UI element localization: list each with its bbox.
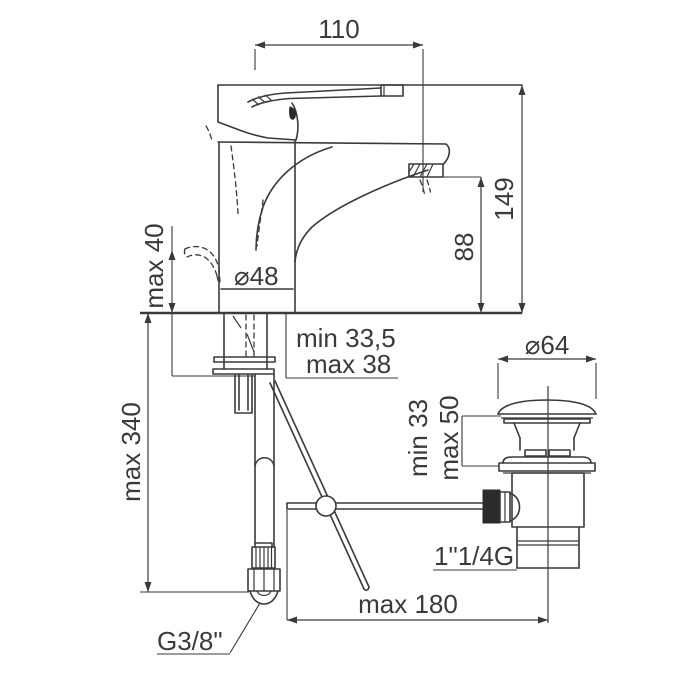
mounting-shank (213, 313, 275, 413)
popup-rod (270, 383, 364, 589)
water-stream (420, 180, 431, 194)
lever-blade (248, 88, 381, 102)
dim-waste-max-label: max 50 (434, 395, 464, 480)
faucet-dimension-drawing: 110 149 88 max 40 max 340 min 33,5 max 3… (0, 0, 700, 700)
dim-overall-height: 149 (489, 85, 526, 313)
threaded-stud (235, 375, 252, 413)
faucet-handle (206, 85, 522, 141)
dim-deck-max-label: max 38 (306, 349, 391, 379)
dim-outlet-height: 88 (420, 177, 485, 313)
technical-drawing-page: 110 149 88 max 40 max 340 min 33,5 max 3… (0, 0, 700, 700)
dim-rod-reach-label: max 180 (358, 589, 458, 619)
waste-flange (499, 457, 595, 473)
waste-side-inlet (483, 490, 520, 523)
faucet-body (184, 141, 449, 313)
dim-lever-height-label: max 40 (139, 223, 169, 308)
dim-spout-reach-label: 110 (318, 14, 359, 44)
spout-rear-curve (256, 147, 332, 250)
spout-inner-curve (295, 170, 428, 262)
popup-waste (483, 386, 596, 623)
dim-waste-cap-label: ⌀64 (525, 330, 570, 360)
dim-body-diameter: ⌀48 (234, 261, 279, 291)
waste-cap (498, 400, 596, 418)
dim-waste-height-range: min 33 max 50 (403, 395, 501, 480)
dim-body-diameter-label: ⌀48 (234, 261, 279, 291)
lever-open-position (184, 247, 220, 284)
dim-spout-reach: 110 (255, 14, 423, 192)
mounting-nut (213, 369, 274, 374)
dim-deck-thickness: min 33,5 max 38 (286, 313, 398, 379)
dim-inlet-thread-label: G3/8" (157, 626, 223, 656)
dim-overall-height-label: 149 (489, 177, 519, 220)
dim-hose-length-label: max 340 (116, 402, 146, 502)
dim-waste-thread-label: 1"1/4G (434, 541, 514, 571)
lever-swing-arc (206, 126, 212, 141)
dim-outlet-height-label: 88 (449, 233, 479, 262)
dim-hose-length: max 340 (116, 313, 249, 592)
dim-waste-cap-diameter: ⌀64 (498, 330, 596, 399)
dim-waste-thread: 1"1/4G (433, 541, 517, 571)
hose-fitting (248, 543, 280, 604)
horseshoe-washer (214, 357, 275, 362)
aerator (409, 164, 443, 194)
dim-waste-min-label: min 33 (403, 399, 433, 477)
dim-inlet-thread: G3/8" (157, 603, 260, 656)
rod-ball-joint (316, 496, 336, 516)
inlet-thread-leader (230, 603, 260, 653)
